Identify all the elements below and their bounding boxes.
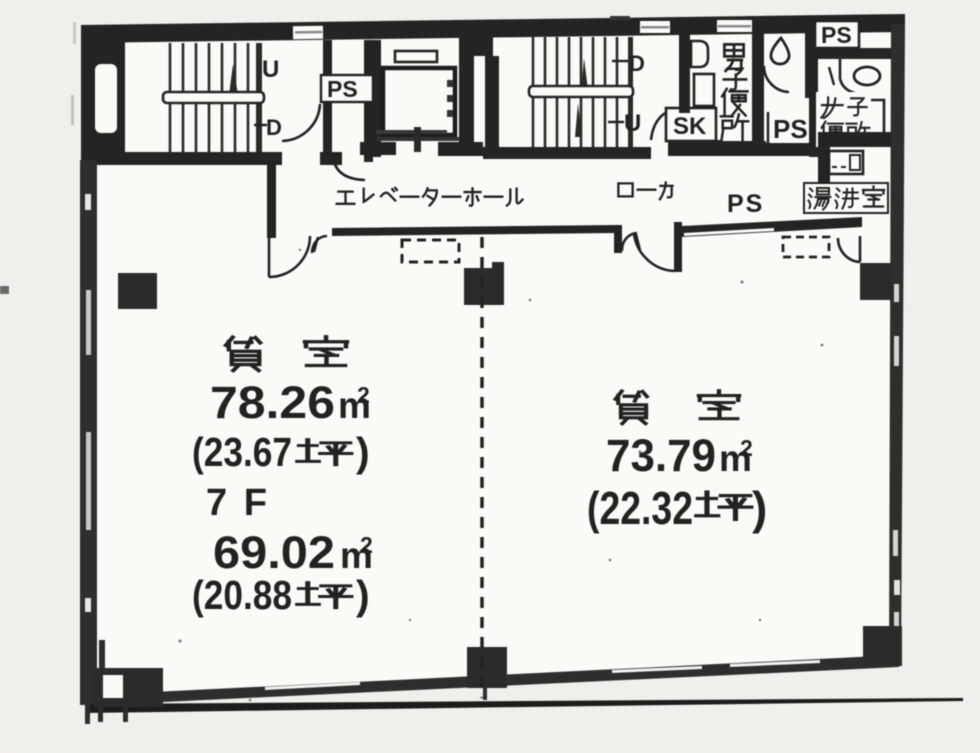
svg-text:(22.32: (22.32 bbox=[587, 482, 693, 534]
svg-text:): ) bbox=[356, 429, 370, 475]
svg-text:PS: PS bbox=[773, 114, 808, 144]
svg-text:(20.88: (20.88 bbox=[192, 572, 292, 618]
svg-text:2: 2 bbox=[740, 435, 753, 461]
svg-text:(23.67: (23.67 bbox=[192, 429, 292, 475]
svg-text:69.02: 69.02 bbox=[213, 527, 335, 578]
svg-text:2: 2 bbox=[357, 382, 370, 408]
svg-text:PS: PS bbox=[327, 76, 358, 102]
svg-text:D: D bbox=[629, 51, 645, 76]
svg-text:U: U bbox=[624, 110, 641, 137]
svg-text:D: D bbox=[266, 115, 282, 140]
svg-text:2: 2 bbox=[360, 532, 373, 558]
svg-text:PS: PS bbox=[821, 22, 852, 48]
svg-text:): ) bbox=[356, 572, 370, 618]
svg-text:7 F: 7 F bbox=[206, 482, 270, 524]
svg-text:73.79: 73.79 bbox=[606, 430, 716, 481]
svg-text:SK: SK bbox=[673, 113, 707, 140]
svg-text:PS: PS bbox=[727, 190, 764, 218]
svg-text:U: U bbox=[262, 56, 279, 83]
svg-text:): ) bbox=[752, 482, 767, 534]
svg-text:78.26: 78.26 bbox=[210, 377, 335, 428]
